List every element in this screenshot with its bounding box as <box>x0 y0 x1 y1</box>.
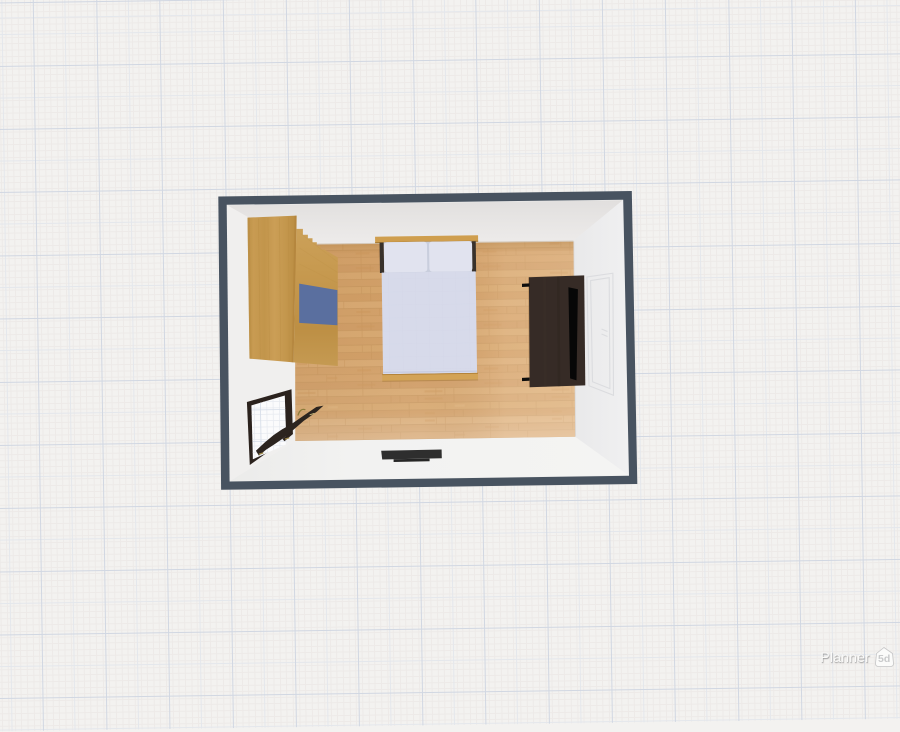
svg-text:5d: 5d <box>878 653 890 665</box>
